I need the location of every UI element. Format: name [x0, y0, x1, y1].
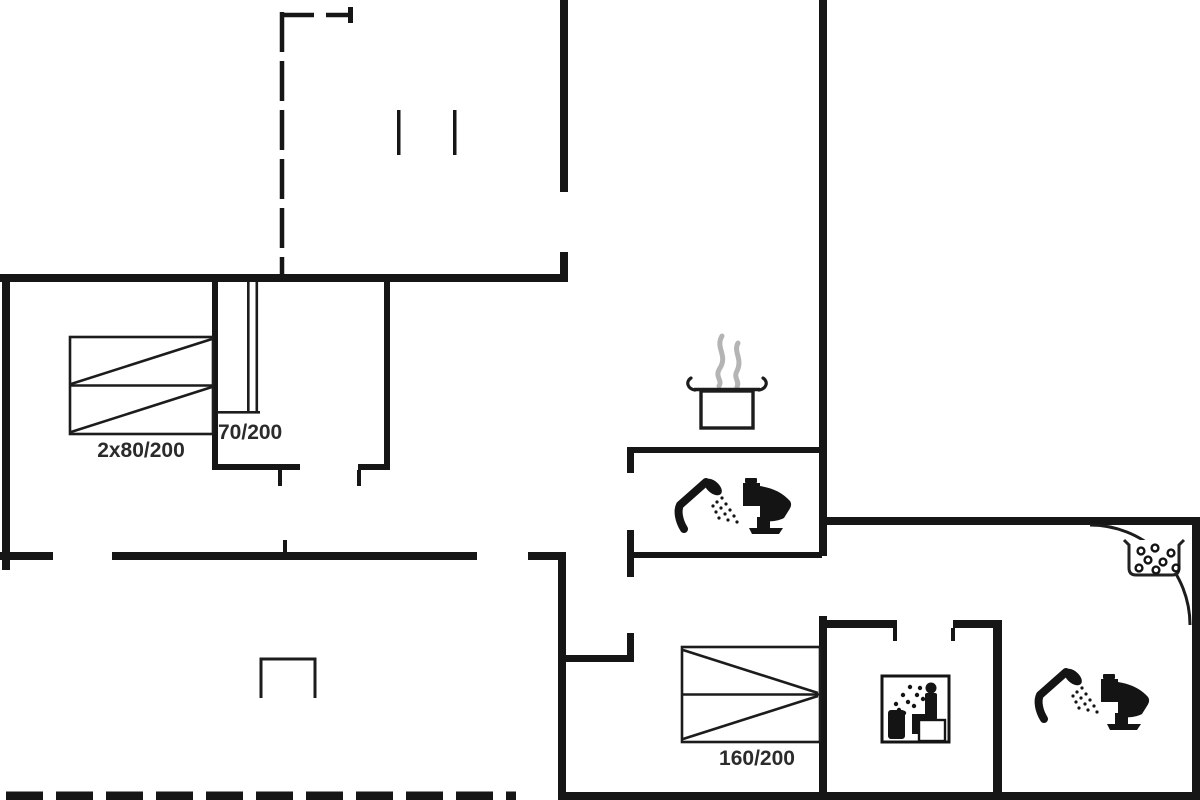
terrace-post-tick	[453, 110, 457, 155]
wall-mid-vertical	[558, 552, 566, 800]
walls	[0, 0, 1200, 800]
wall-entry-east	[384, 282, 390, 467]
wall-living-south-a	[0, 552, 53, 560]
floor-plan-drawing: 2x80/200 70/200 160/200	[0, 0, 1200, 800]
door-leaf-cap	[217, 411, 260, 414]
wall-top	[0, 274, 568, 282]
cooking-pot-icon	[688, 336, 766, 428]
bed-duvet-line	[683, 650, 818, 693]
wall-corridor-bottom	[558, 655, 634, 662]
door-jamb-tick	[278, 470, 282, 486]
toilet-base	[749, 528, 783, 534]
bed-duvet-line	[71, 339, 212, 384]
bed-size-label: 160/200	[719, 747, 795, 770]
toilet-tank	[743, 483, 760, 506]
toilet-pedestal	[757, 517, 770, 528]
wall-sauna-bath-divider	[993, 620, 1002, 800]
wall-hall-top	[819, 517, 1200, 525]
shower-spray-dots	[711, 496, 738, 523]
wall-left-outer	[2, 274, 10, 570]
bed-duvet-line	[683, 696, 818, 739]
door-jamb-tick	[283, 540, 287, 552]
wall-sauna-top-a	[819, 620, 897, 628]
shower-icon	[679, 476, 739, 529]
terrace-post-tick	[397, 110, 401, 155]
fixture-outline	[261, 659, 315, 698]
wall-bath-bottom	[627, 552, 822, 558]
door-jamb-tick	[357, 470, 361, 486]
person-shin	[912, 714, 918, 734]
wall-terrace-upper	[560, 0, 568, 192]
floor-plan: 2x80/200 70/200 160/200	[0, 0, 1200, 800]
shower-icon	[1039, 666, 1099, 719]
toilet-icon	[1101, 674, 1149, 730]
bed-160	[682, 647, 820, 742]
wall-bottom-outer	[558, 792, 1200, 800]
wall-terrace-lower	[560, 252, 568, 282]
wall-bath-west-a	[627, 450, 634, 473]
door-jamb-tick	[951, 628, 955, 641]
entry-door-leaf	[217, 282, 260, 414]
wall-bedroom1-south-a	[212, 464, 300, 470]
toilet-icon	[743, 478, 791, 534]
toilet-lid	[745, 478, 757, 483]
toilet-bowl	[760, 486, 791, 521]
shower-handle	[679, 482, 706, 529]
wall-rightwing-west	[819, 0, 827, 556]
bed-duvet-line	[71, 387, 212, 432]
wall-right-outer	[1192, 517, 1200, 800]
door-jamb-tick	[893, 628, 897, 641]
door-leaf-line	[247, 282, 250, 413]
steam-wisp	[736, 343, 739, 387]
wall-bath-top	[627, 447, 822, 453]
pot-body	[701, 391, 753, 428]
sauna-icon	[882, 676, 949, 742]
double-bed	[70, 337, 213, 434]
sauna-bench	[919, 720, 945, 741]
wall-sauna-top-b	[953, 620, 997, 628]
steam-wisp	[718, 336, 723, 386]
pot-handle	[759, 378, 766, 390]
pot-handle	[688, 378, 695, 390]
wall-bath-west-c	[627, 633, 634, 660]
door-leaf-line	[256, 282, 259, 413]
pebble-tub-icon	[1124, 540, 1184, 575]
double-bed-size-label: 2x80/200	[97, 439, 185, 462]
door-size-label: 70/200	[218, 421, 282, 444]
wall-living-south-b	[112, 552, 477, 560]
person-head	[926, 683, 937, 694]
